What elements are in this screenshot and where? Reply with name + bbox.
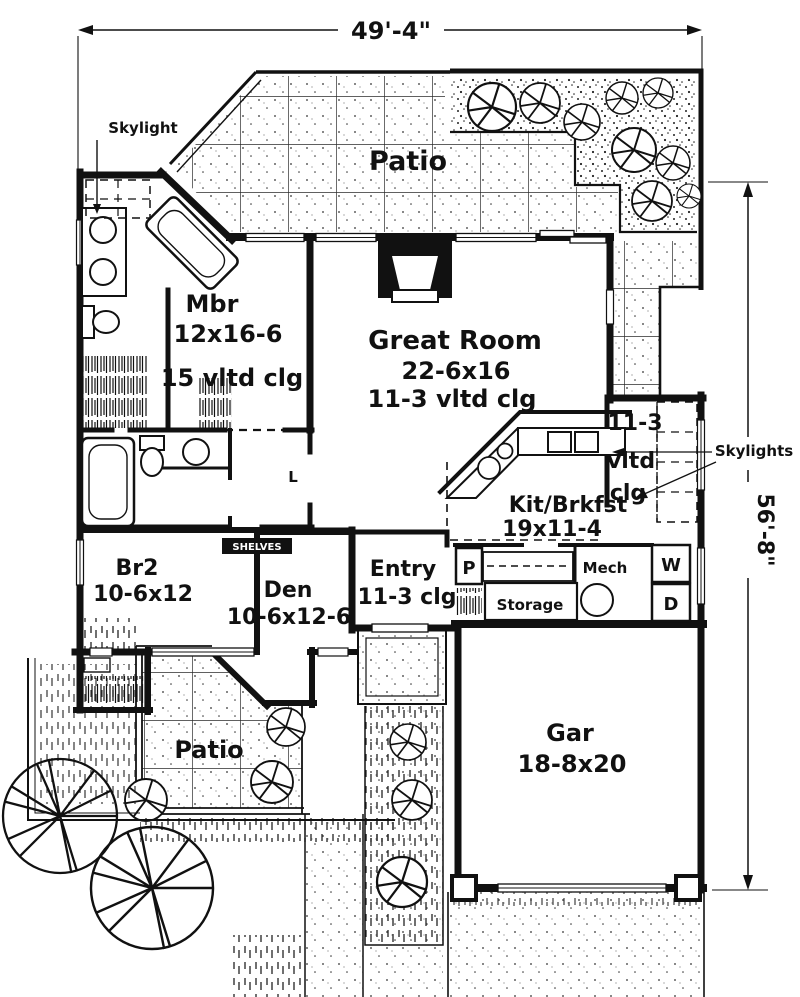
bush-icon [677,184,701,208]
driveway [448,892,704,997]
label-skylights-group: Skylights [712,438,796,460]
room-label-entry: Entry [370,557,436,582]
dimension-right: 56'-8" [708,182,777,890]
cooktop-icon [575,432,598,452]
room-label-kit: Kit/Brkfst [509,493,628,518]
bush-icon [390,724,426,760]
label-dryer: D [664,594,679,615]
sink-icon [498,444,513,459]
sink-icon [90,259,116,285]
bush-icon [564,104,600,140]
garage-pilaster [676,876,700,900]
room-label-br2: Br2 [116,556,159,581]
floor-plan-drawing: 49'-4" 56'-8" Skylight Patio Mbr 12x16-6… [0,0,800,997]
window [698,420,705,490]
kitchen-fixtures [447,428,625,498]
floor-plan-sheet: 49'-4" 56'-8" Skylight Patio Mbr 12x16-6… [0,0,800,997]
label-skylights: Skylights [715,442,793,460]
room-label-mbr: Mbr [186,290,239,318]
room-label-den: Den [264,578,313,603]
side-patio [125,646,310,821]
planting-bed-front [365,706,443,945]
bush-icon [251,761,293,803]
bush-icon [606,82,638,114]
bush-icon [267,708,305,746]
room-size-gar: 18-8x20 [518,750,627,778]
window [456,234,536,242]
window [318,648,348,656]
bush-icon [392,780,432,820]
garage-pilaster [452,876,476,900]
garage-door [498,884,666,892]
entry-porch [358,630,446,704]
bush-icon [468,83,516,131]
sink-icon [478,457,500,479]
cooktop-icon [548,432,571,452]
room-size-great: 22-6x16 [402,357,511,385]
tree-icon [91,827,213,949]
window [316,234,376,242]
rear-door [607,290,614,324]
dim-right-label: 56'-8" [752,493,777,566]
sink-icon [183,439,209,465]
bush-icon [643,78,673,108]
br2-slider-door [152,648,254,656]
room-label-mech: Mech [583,559,628,577]
label-pantry: P [462,558,475,579]
room-size-br2: 10-6x12 [93,582,193,607]
sink-icon [90,217,116,243]
room-label-patio-bottom: Patio [174,736,243,764]
bush-icon [520,83,560,123]
front-door [372,624,428,632]
room-label-storage: Storage [497,596,564,614]
toilet-icon [141,448,163,476]
window [698,548,705,604]
room-label-patio-top: Patio [369,146,447,177]
room-clg-entry: 11-3 clg [357,585,456,610]
room-clg-great: 11-3 vltd clg [368,385,537,413]
room-size-kit: 19x11-4 [502,517,602,542]
rear-hall-clg-1: 11-3 [607,411,662,436]
bush-icon [377,857,427,907]
room-label-great: Great Room [368,326,542,356]
room-label-gar: Gar [546,719,594,747]
hall-bath-fixtures [82,436,209,526]
window [77,540,84,585]
label-shelves: SHELVES [232,542,281,553]
label-skylight: Skylight [108,119,177,137]
rear-hall-clg-2: vltd [607,449,655,474]
room-size-mbr: 12x16-6 [174,320,283,348]
label-linen: L [288,468,298,486]
utility-room-items [456,545,690,621]
water-heater-icon [581,584,613,616]
toilet-icon [93,311,119,333]
bush-icon [656,146,690,180]
fireplace-icon [378,238,452,302]
dim-top-label: 49'-4" [351,17,431,45]
room-clg-mbr: 15 vltd clg [161,364,303,392]
bush-icon [612,128,656,172]
patio-slider-door [540,231,606,244]
label-washer: W [661,555,681,576]
window [90,648,112,656]
mbr-slider-door [246,234,304,242]
bush-icon [632,181,672,221]
room-size-den: 10-6x12-6 [227,605,351,630]
